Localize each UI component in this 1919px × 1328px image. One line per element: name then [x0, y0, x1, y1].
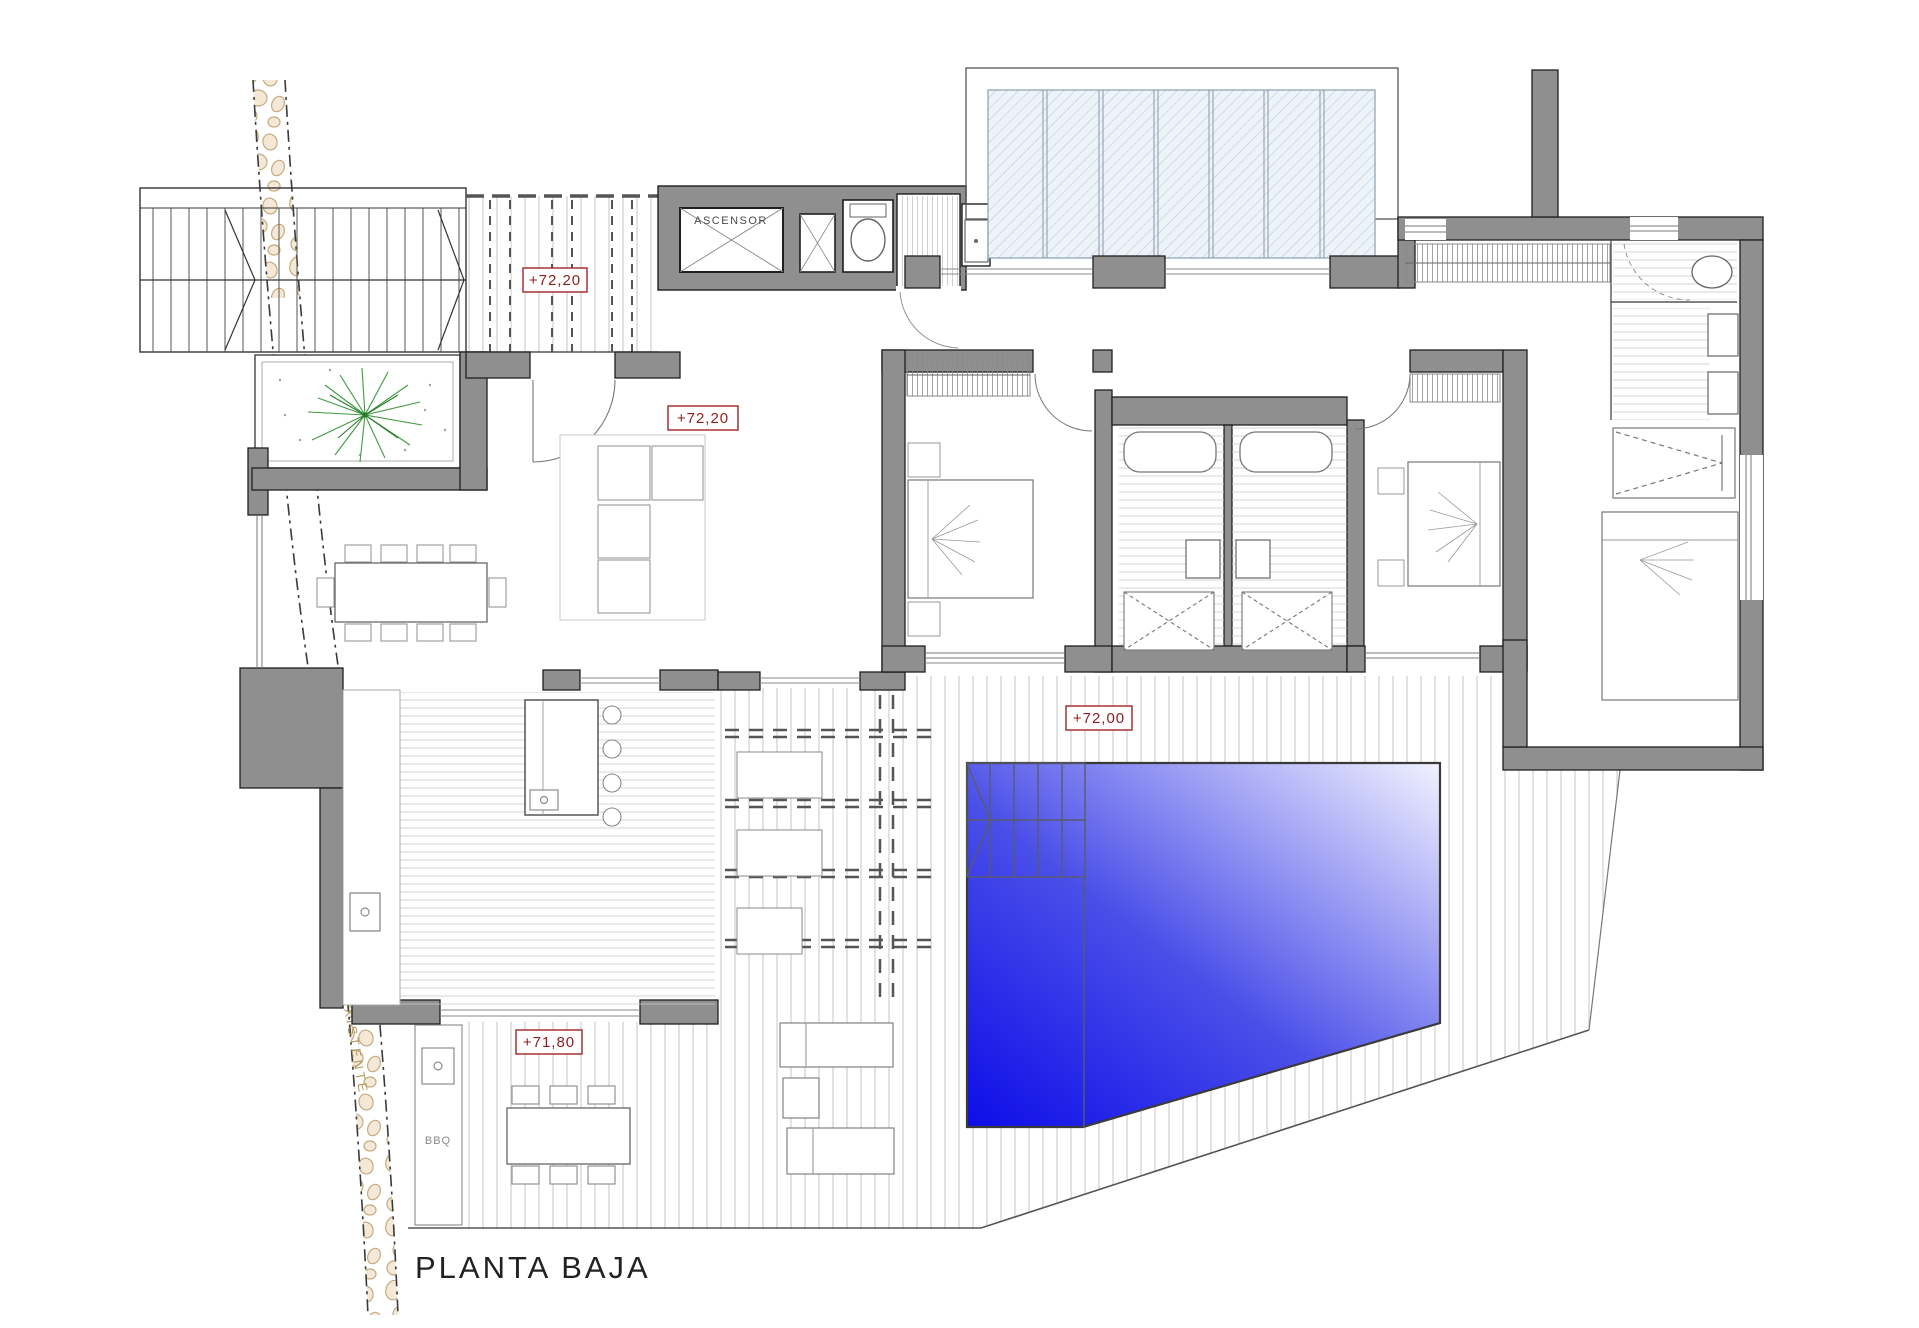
bedroom-1 — [907, 354, 1092, 636]
porch-level-text: +72,20 — [529, 272, 581, 289]
porch-level-marker: +72,20 — [523, 268, 587, 292]
sink-left — [1186, 540, 1220, 578]
kitchen-island — [525, 700, 598, 815]
master-bed — [1602, 512, 1738, 700]
living-west-window — [257, 515, 262, 668]
plan-title: PLANTA BAJA — [415, 1250, 651, 1285]
central-bathroom — [1119, 425, 1347, 650]
bbq-label: BBQ — [425, 1135, 451, 1147]
elevator-label: ASCENSOR — [694, 215, 768, 227]
wing-north-window — [1630, 217, 1678, 240]
sofa — [560, 435, 705, 620]
bathtub-left — [1124, 432, 1216, 472]
living-level-marker: +72,20 — [668, 406, 738, 430]
sink-right — [1236, 540, 1270, 578]
glass-roof — [988, 90, 1375, 258]
bbq-counter: BBQ — [415, 1025, 462, 1225]
master-sink-1 — [1708, 314, 1738, 356]
skylight-court — [966, 68, 1398, 258]
bedroom2-window — [1365, 653, 1480, 658]
elevator-shaft: ASCENSOR — [680, 208, 783, 272]
living-level-text: +72,20 — [677, 410, 729, 427]
exterior-staircase — [140, 188, 466, 352]
pool-level-text: +72,00 — [1073, 710, 1125, 727]
shower-right — [1242, 592, 1332, 650]
bbq-level-marker: +71,80 — [516, 1030, 582, 1054]
bbq-level-text: +71,80 — [523, 1034, 575, 1051]
floor-plan-drawing: MURO EXISTENTE — [0, 0, 1919, 1328]
service-shaft — [800, 214, 835, 272]
bedroom1-window — [925, 653, 1065, 658]
guest-toilet — [843, 200, 893, 272]
outdoor-dining-table — [507, 1086, 630, 1184]
palm-planter — [255, 355, 460, 468]
floor-plan-page: MURO EXISTENTE — [0, 0, 1919, 1328]
dining-table — [317, 545, 506, 641]
wing-east-window — [1740, 455, 1763, 600]
kitchen-sink — [350, 893, 380, 931]
pool-level-marker: +72,00 — [1066, 706, 1132, 730]
bed-2 — [1378, 462, 1500, 586]
bed-1 — [908, 443, 1033, 636]
master-bathroom — [1611, 240, 1738, 420]
master-sink-2 — [1708, 372, 1738, 414]
court-door — [1405, 219, 1446, 240]
bathtub-right — [1240, 432, 1332, 472]
master-toilet — [1692, 256, 1732, 288]
shower-left — [1124, 592, 1214, 650]
bedroom-2 — [1355, 374, 1500, 586]
kitchen — [343, 690, 715, 1005]
master-closet — [1613, 428, 1735, 498]
